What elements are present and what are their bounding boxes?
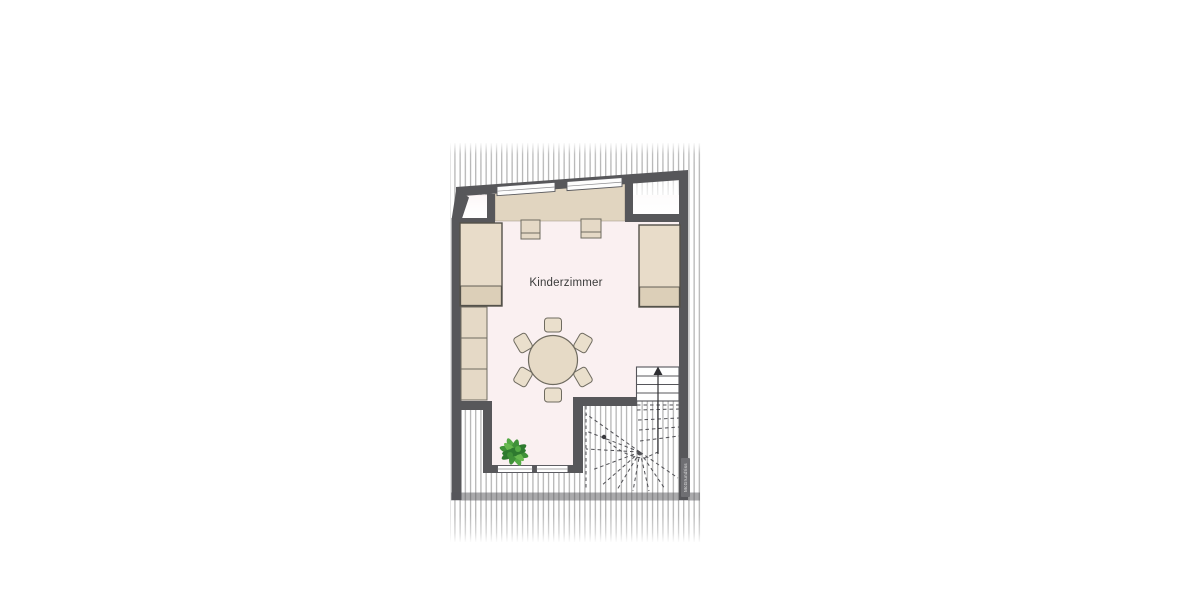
bed-right: [639, 225, 680, 307]
niche-top-right: [633, 180, 679, 214]
chair-top: [545, 318, 562, 332]
wall-bay-right: [573, 397, 583, 473]
wall-bottom-right: [573, 397, 637, 406]
nightstand-left: [521, 220, 540, 239]
wall-niche-right-bottom: [625, 214, 685, 222]
floorplan-drawing: [0, 0, 1200, 600]
wall-bottom-translucent: [451, 493, 700, 501]
bed-left: [460, 223, 502, 306]
wall-niche-left-side: [487, 194, 495, 226]
floorplan-canvas: Kinderzimmer McGrundriss: [0, 0, 1200, 600]
nightstand-right: [581, 219, 601, 238]
round-table: [529, 336, 578, 385]
wall-niche-right-side: [625, 182, 633, 222]
wardrobe-shelf: [461, 307, 487, 400]
chair-bottom: [545, 388, 562, 402]
watermark-badge: McGrundriss: [681, 458, 690, 497]
walkline-start-dot: [602, 435, 606, 439]
bay-windows: [498, 466, 569, 473]
wall-bay-left: [483, 401, 492, 473]
room-label: Kinderzimmer: [516, 277, 616, 289]
